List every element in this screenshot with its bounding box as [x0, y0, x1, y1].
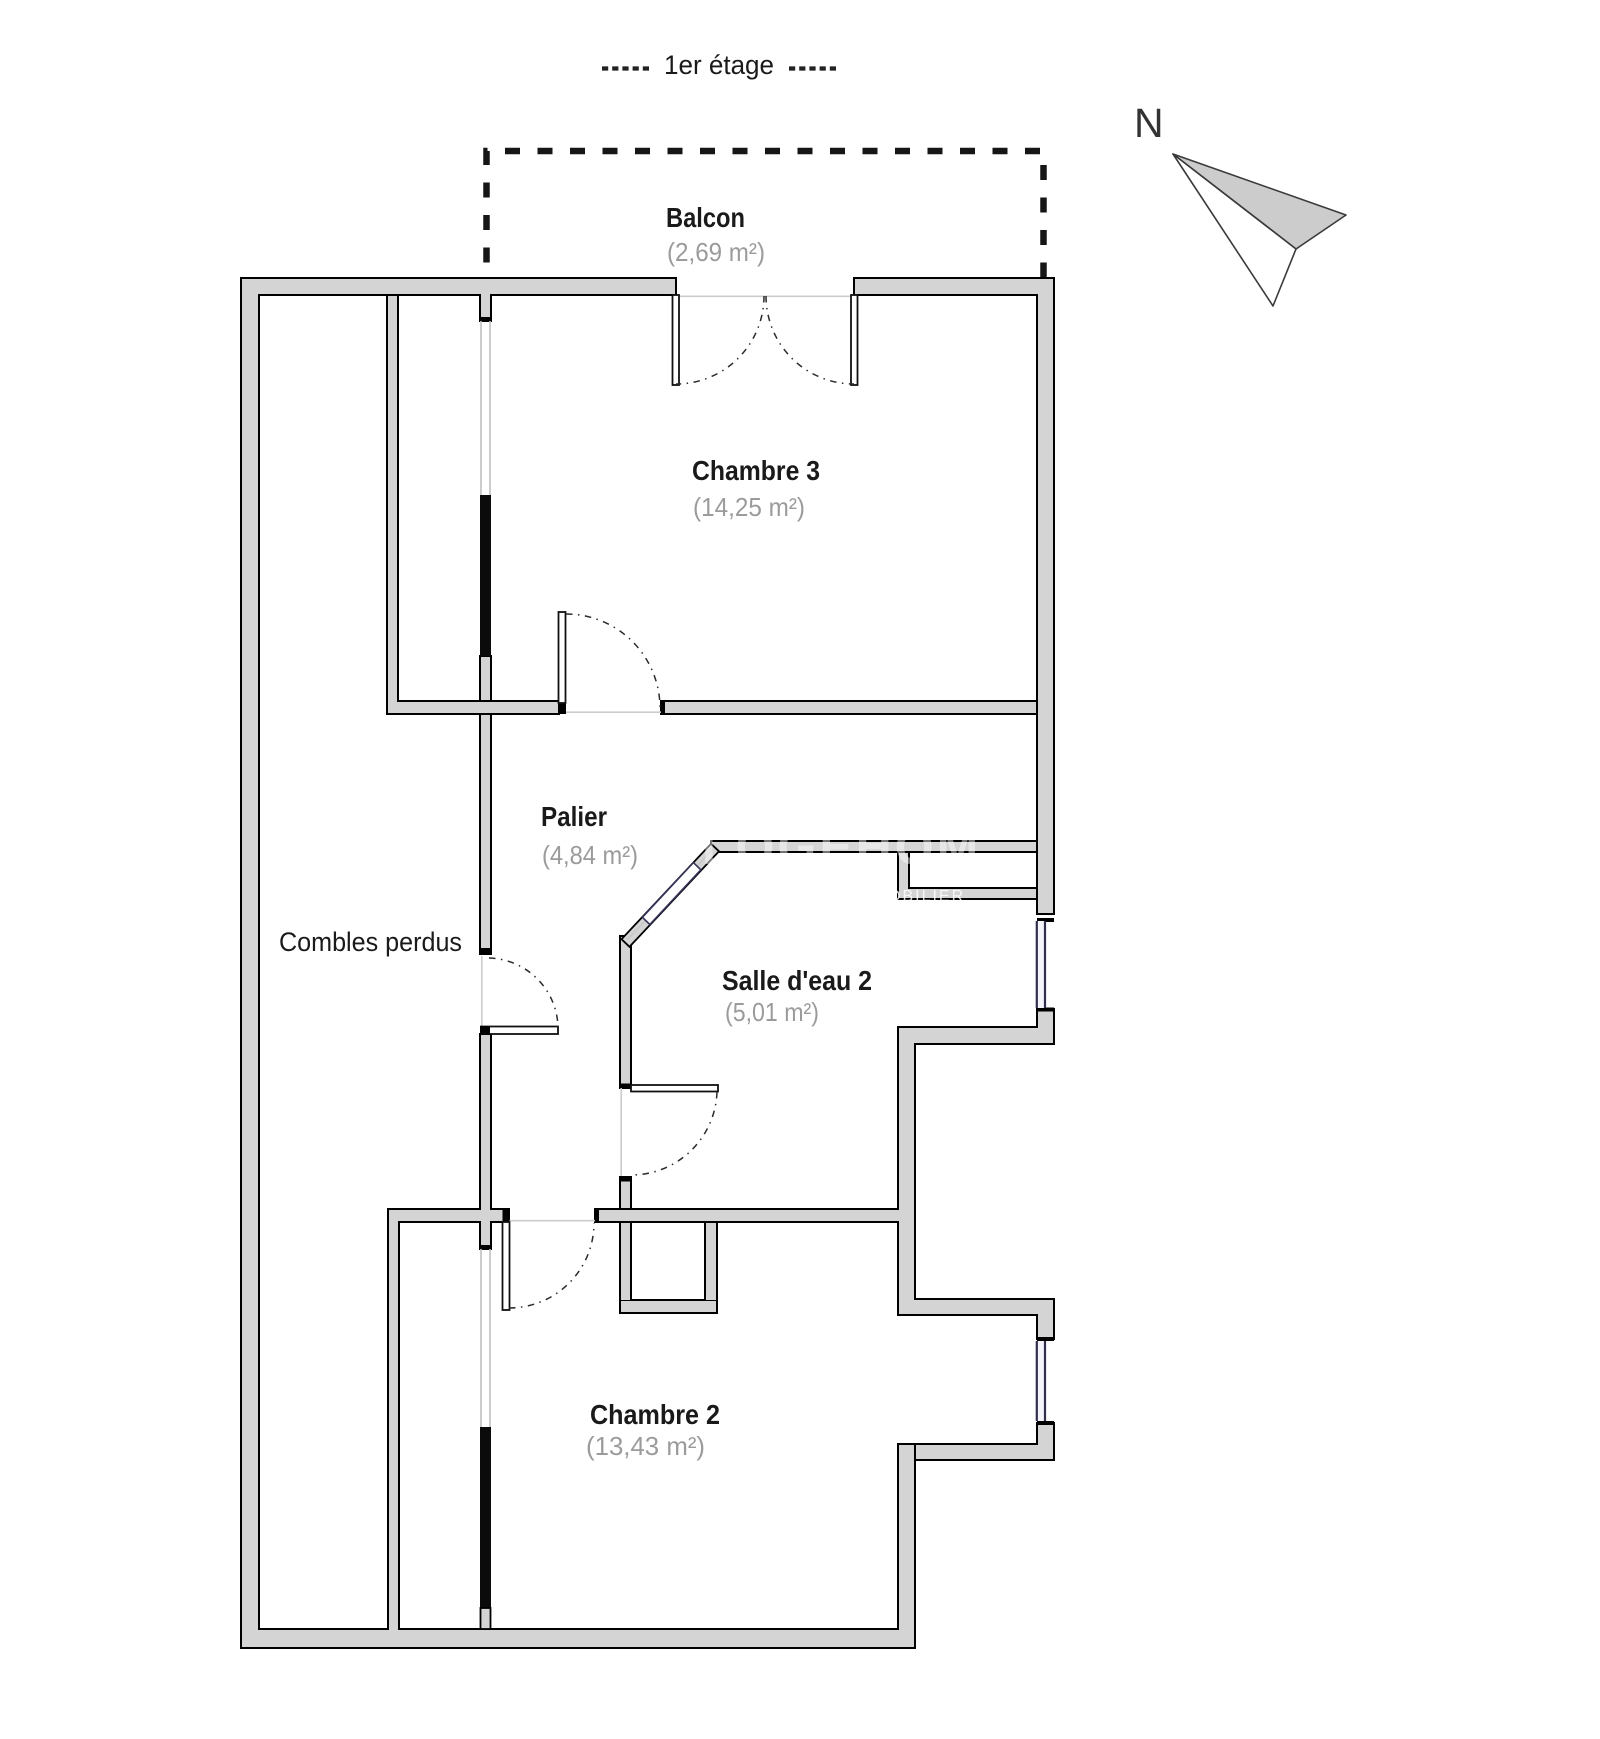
svg-text:(2,69 m²): (2,69 m²) — [667, 237, 765, 267]
svg-text:N: N — [1134, 100, 1164, 146]
svg-text:(14,25 m²): (14,25 m²) — [693, 492, 805, 522]
svg-text:Palier: Palier — [541, 801, 607, 832]
svg-text:Chambre 2: Chambre 2 — [590, 1399, 720, 1430]
svg-text:(5,01 m²): (5,01 m²) — [725, 997, 819, 1027]
svg-text:Salle d'eau 2: Salle d'eau 2 — [722, 965, 872, 996]
svg-text:(4,84 m²): (4,84 m²) — [542, 840, 638, 870]
svg-text:(13,43 m²): (13,43 m²) — [586, 1431, 705, 1461]
svg-text:1er étage: 1er étage — [664, 50, 774, 80]
svg-text:Balcon: Balcon — [666, 202, 745, 233]
svg-text:LOGEHOM: LOGEHOM — [702, 819, 981, 875]
svg-text:Combles perdus: Combles perdus — [279, 927, 462, 957]
svg-text:Chambre 3: Chambre 3 — [692, 455, 820, 486]
svg-text:OBILIER: OBILIER — [888, 888, 965, 905]
